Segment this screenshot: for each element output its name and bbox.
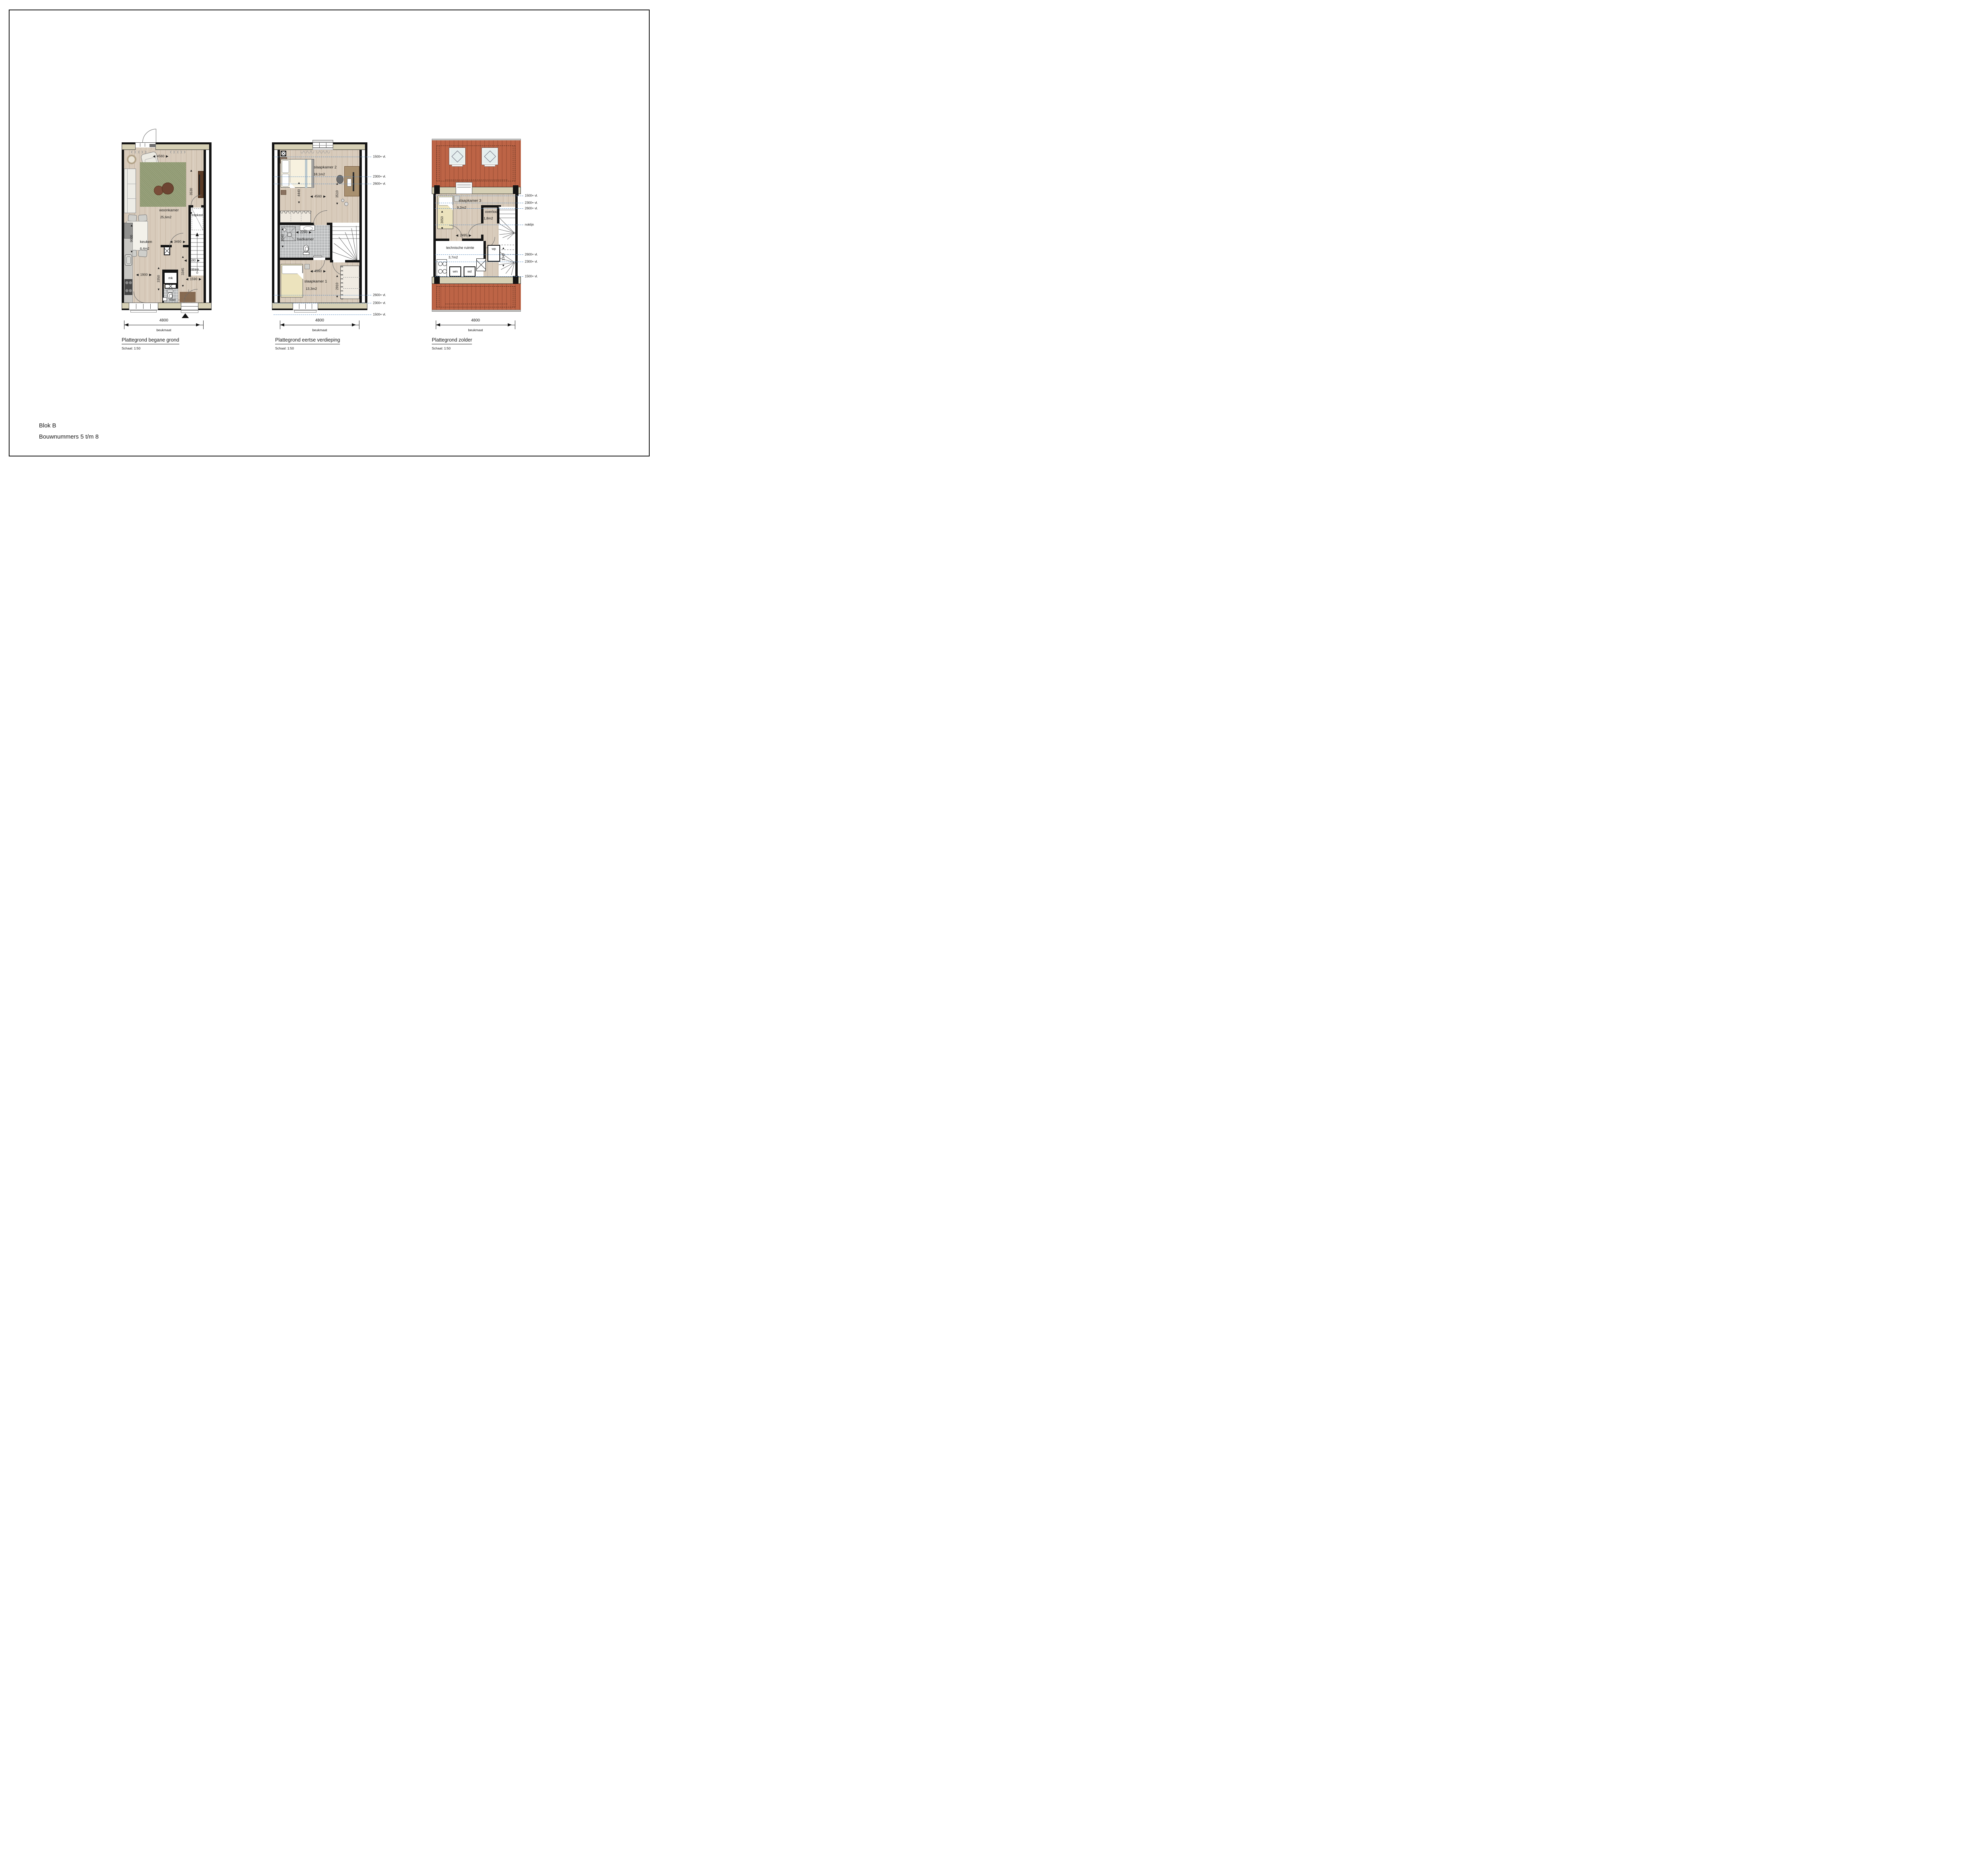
arrow-left-icon: ◀ (310, 195, 313, 198)
room-label-mk: mk (168, 276, 173, 280)
dim-tick (203, 320, 204, 329)
dim-4560: ◀4560▶ (310, 195, 326, 198)
window-sill (130, 310, 157, 313)
dim-2590: ◀2590▶ (184, 259, 200, 262)
wall (272, 142, 313, 144)
window-mullion (305, 304, 306, 309)
drawing-sheet: ◀4560▶ ▲ 3530 ▼ woonkamer 25,6m2 ▲ 9600 … (0, 0, 658, 465)
arrow-right-icon: ▶ (166, 155, 168, 158)
dining-chair (138, 214, 147, 221)
block-label: Blok B (39, 422, 56, 429)
wall (122, 142, 135, 144)
single-bed (281, 264, 303, 297)
window-mullion (299, 304, 299, 309)
facade-band-mid-top (432, 187, 521, 194)
room-label-overloop: overloop (485, 210, 499, 214)
arrow-up-icon: ▲ (336, 182, 339, 186)
skylight-diamond (452, 151, 464, 163)
arrow-down-icon: ▼ (281, 245, 284, 249)
roof-dashed-line (445, 180, 507, 180)
door-leaf (156, 129, 156, 142)
duct-shaft (164, 247, 170, 255)
shower-drain (287, 233, 291, 237)
level-label: 1500+ vl. (525, 194, 538, 198)
roof-dashed-line (439, 146, 439, 181)
wall (272, 309, 293, 310)
plan-title: Plattegrond begane grond (122, 337, 179, 344)
plan-title: Plattegrond zolder (432, 337, 472, 344)
arrow-right-icon: ▶ (309, 231, 311, 234)
wall (333, 142, 367, 144)
beam-width: 4800 (158, 318, 170, 323)
door-mullion (145, 143, 145, 147)
beam-label: beukmaat (312, 328, 327, 332)
arrow-down-icon: ▼ (336, 202, 339, 206)
dining-chair (128, 214, 137, 221)
entrance-arrow-icon (182, 313, 189, 318)
dim-arrow-left-icon (280, 323, 284, 326)
arrow-left-icon: ◀ (456, 234, 458, 237)
coffee-table (162, 183, 174, 194)
level-label: 2600+ vl. (525, 253, 538, 256)
beam-width: 4800 (470, 318, 481, 323)
room-area-woonkamer: 25,6m2 (160, 215, 171, 219)
arrow-left-icon: ◀ (170, 240, 172, 244)
door-leaf (181, 306, 198, 307)
dim-value: 1590 (190, 278, 198, 281)
beam-dim-line (280, 325, 359, 325)
dining-chair (138, 250, 147, 257)
pillow (282, 174, 289, 186)
dim-2040: 2040 (281, 234, 285, 242)
arrow-right-icon: ▶ (469, 234, 471, 237)
roof-dashed-line (445, 304, 507, 304)
arrow-left-icon: ◀ (310, 270, 313, 273)
wall-right (515, 194, 518, 277)
wc-tank (303, 252, 309, 255)
dim-arrow-right-icon (508, 323, 512, 326)
duct-shaft (281, 151, 286, 156)
level-label: 2600+ vl. (373, 182, 386, 186)
single-bed (437, 196, 453, 229)
pillow (282, 265, 303, 274)
dim-arrow-left-icon (436, 323, 440, 326)
dim-value: 2590 (188, 259, 196, 262)
sofa-back (127, 169, 128, 214)
level-line (274, 177, 371, 177)
wardrobe-rail (341, 266, 343, 299)
wardrobe (340, 266, 359, 299)
keyboard (347, 179, 351, 186)
beam-width: 4800 (314, 318, 326, 323)
room-area-slaapkamer2: 18,1m2 (314, 172, 325, 176)
dim-tick (359, 320, 359, 329)
wc-seat (169, 294, 173, 298)
duvet-fold (297, 273, 303, 280)
room-label-woonkamer: woonkamer (159, 208, 179, 213)
arrow-right-icon: ▶ (183, 240, 185, 244)
desk (344, 166, 359, 196)
beam-dim-line (436, 325, 515, 325)
dim-3350: 3350 (157, 275, 161, 283)
window-mullion (312, 304, 312, 309)
room-label-entree: entree (188, 268, 199, 272)
hp-fan (443, 262, 447, 266)
arrow-left-icon: ◀ (136, 273, 138, 277)
basin-bowl (303, 226, 313, 231)
radiator-icon (316, 151, 330, 153)
dim-value: 4560 (315, 270, 322, 273)
duct-shaft (165, 284, 177, 289)
bin (344, 202, 348, 206)
dim-value: 4560 (315, 195, 322, 198)
sofa (124, 169, 136, 213)
room-area-technische-ruimte: 3,7m2 (448, 255, 458, 259)
plan-title: Plattegrond eertse verdieping (275, 337, 340, 344)
arrow-up-icon: ▲ (130, 224, 133, 227)
roof-dashed-line (513, 146, 513, 181)
towel-radiator (313, 256, 322, 257)
arrow-left-icon: ◀ (153, 155, 155, 158)
nightstand (305, 264, 310, 269)
window-mullion (150, 304, 151, 309)
window-bar (313, 145, 333, 146)
wardrobe-rail (280, 211, 311, 214)
level-line (435, 208, 523, 209)
dim-3050: 3050 (441, 216, 444, 224)
dim-4560b: ◀4560▶ (310, 270, 326, 273)
party-wall-stub (209, 142, 212, 310)
radiator-icon (170, 151, 185, 153)
tv-screen (199, 175, 200, 195)
bin (341, 199, 344, 202)
room-label-technische-ruimte: technische ruimte (446, 246, 474, 250)
room-area-slaapkamer1: 13,3m2 (306, 287, 317, 291)
pillow (282, 160, 289, 173)
duvet-fold (447, 205, 453, 210)
wall (198, 309, 212, 310)
build-numbers-label: Bouwnummers 5 t/m 8 (39, 433, 99, 440)
party-wall-stub (365, 142, 367, 310)
dim-value: 4560 (157, 155, 165, 158)
dim-value: 1900 (140, 273, 148, 277)
wc-bowl (303, 245, 309, 252)
roof-dashed-outline (437, 146, 515, 181)
arrow-up-icon: ▲ (190, 169, 193, 173)
wardrobe-divider (291, 214, 291, 223)
level-line (435, 262, 523, 262)
duct-shaft (476, 258, 486, 271)
dim-3510: 3510 (336, 190, 339, 198)
window-bar (457, 184, 471, 184)
arrow-right-icon: ▶ (149, 273, 151, 277)
skylight-sill (452, 165, 463, 167)
skylight (449, 148, 465, 165)
level-label: 1500+ vl. (373, 313, 386, 316)
roof-dashed-outline (437, 286, 515, 307)
room-label-badkamer: badkamer (297, 237, 314, 242)
arrow-up-icon: ▲ (336, 274, 339, 278)
arrow-down-icon: ▼ (441, 227, 444, 230)
wall (122, 309, 129, 310)
dim-value: 2290 (300, 231, 308, 234)
kitchen-sink (125, 254, 132, 266)
sink-basin (126, 256, 131, 264)
room-label-slaapkamer2: slaapkamer 2 (314, 165, 336, 170)
room-label-slaapkamer1: slaapkamer 1 (304, 280, 327, 284)
ridge-line (435, 225, 523, 225)
wardrobe-divider (301, 214, 301, 223)
arrow-up-icon: ▲ (281, 227, 284, 231)
plan-scale: Schaal: 1:50 (432, 346, 450, 350)
window (129, 303, 158, 310)
arrow-down-icon: ▼ (157, 288, 160, 291)
radiator-icon (301, 151, 314, 153)
arrow-right-icon: ▶ (197, 259, 200, 262)
dim-1590: ◀1590▶ (186, 278, 201, 281)
hp-fan (443, 269, 447, 274)
level-line (274, 295, 371, 295)
window-mullion (143, 304, 144, 309)
arrow-right-icon: ▶ (323, 195, 326, 198)
wall-decor (127, 155, 136, 164)
dim-2495: ◀2495▶ (456, 234, 471, 237)
door-step (181, 310, 198, 313)
wardrobe (280, 211, 311, 223)
beam-label: beukmaat (156, 328, 171, 332)
level-line (435, 276, 523, 277)
tv-cabinet (198, 171, 204, 198)
level-label: 2600+ vl. (373, 293, 386, 297)
arrow-down-icon: ▼ (297, 201, 301, 204)
arrow-left-icon: ◀ (184, 259, 186, 262)
party-wall-stub (272, 142, 274, 310)
label-wd: wd (468, 270, 472, 274)
wall (483, 241, 486, 261)
arrow-up-icon: ▲ (297, 181, 301, 185)
arrow-up-icon: ▲ (502, 247, 505, 250)
level-label: 2300+ vl. (525, 201, 538, 205)
hp-fan (438, 269, 443, 274)
wardrobe-divider (343, 277, 360, 278)
monitor (353, 172, 354, 191)
window-mullion (136, 304, 136, 309)
dim-9600: 9600 (130, 235, 134, 243)
staircase (332, 223, 359, 262)
beam-label: beukmaat (468, 328, 483, 332)
label-wp: wp (492, 247, 496, 251)
dim-tick (515, 320, 515, 329)
dim-2910: 2910 (336, 283, 339, 290)
stove (124, 279, 132, 295)
window-bar (457, 186, 471, 186)
window-sill (294, 310, 316, 313)
dim-1900: ◀1900▶ (136, 273, 151, 277)
dim-value: 3490 (174, 240, 182, 244)
level-line (274, 184, 371, 184)
level-label: 1500+ vl. (373, 155, 386, 159)
skylight-sill (484, 165, 495, 167)
level-label: 2300+ vl. (373, 301, 386, 305)
stool (281, 190, 286, 195)
dim-arrow-left-icon (124, 323, 128, 326)
arrow-down-icon: ▼ (130, 250, 133, 254)
level-line (435, 196, 523, 196)
dim-arrow-right-icon (196, 323, 200, 326)
arrow-left-icon: ◀ (296, 231, 298, 234)
arrow-up-icon: ▲ (181, 255, 184, 259)
wall-right (204, 150, 206, 303)
hp-fan (438, 262, 443, 266)
sofa-cushion (127, 198, 136, 199)
arrow-left-icon: ◀ (186, 278, 188, 281)
window-bar (457, 187, 471, 188)
dim-2290: ◀2290▶ (296, 231, 311, 234)
dim-1340: 1340 (502, 253, 505, 261)
roof-eave-strip (432, 310, 521, 312)
room-label-toilet: toilet (169, 298, 176, 302)
arrow-down-icon: ▼ (502, 264, 505, 268)
level-label: 2300+ vl. (525, 260, 538, 264)
skylight (482, 148, 498, 165)
wall (158, 309, 181, 310)
stair-closet-dashes (192, 208, 203, 230)
plan-scale: Schaal: 1:50 (275, 346, 294, 350)
room-label-trapkast: trapkast (192, 214, 203, 217)
sofa-cushion (127, 184, 136, 184)
level-label: 2300+ vl. (373, 175, 386, 179)
wall (318, 309, 367, 310)
dim-4440: 4440 (297, 189, 301, 197)
door-mullion (140, 143, 140, 147)
room-area-slaapkamer3: 9,2m2 (457, 206, 466, 210)
arrow-down-icon: ▼ (181, 284, 184, 288)
beam-dim-line (124, 325, 204, 325)
wall (177, 270, 178, 289)
wardrobe-divider (343, 288, 360, 289)
plan-scale: Schaal: 1:50 (122, 346, 140, 350)
dim-arrow-right-icon (352, 323, 356, 326)
spiral-staircase (499, 207, 515, 277)
dim-4560: ◀4560▶ (153, 155, 168, 158)
wall (156, 142, 212, 144)
dim-value: 2495 (460, 234, 468, 237)
wall-right (359, 150, 362, 303)
level-line (274, 157, 371, 157)
room-label-keuken: keuken (140, 240, 152, 244)
room-label-slaapkamer3: slaapkamer 3 (458, 199, 481, 203)
wall (481, 208, 483, 223)
dim-3345: 3345 (181, 268, 185, 276)
arrow-right-icon: ▶ (323, 270, 326, 273)
level-label: 2600+ vl. (525, 207, 538, 210)
arrow-down-icon: ▼ (336, 295, 339, 299)
level-line (274, 315, 371, 315)
room-area-overloop: 1,8m2 (483, 216, 493, 220)
level-line (274, 303, 371, 303)
arrow-right-icon: ▶ (199, 278, 201, 281)
facade-band-mid-bottom (432, 277, 521, 284)
arrow-up-icon: ▲ (441, 210, 444, 214)
skylight-diamond (484, 151, 496, 163)
washbasin (300, 225, 315, 231)
level-label: 1500+ vl. (525, 275, 538, 278)
arrow-up-icon: ▲ (157, 266, 160, 270)
dim-3530: 3530 (190, 188, 193, 196)
wc-seat (305, 247, 309, 251)
hand-basin (163, 297, 167, 301)
room-area-keuken: 6,4m2 (140, 247, 149, 250)
roof-dashed-line (439, 286, 439, 307)
roof-dashed-line (513, 286, 513, 307)
radiator-icon (131, 151, 146, 153)
ridge-label: noklijn (525, 223, 534, 227)
door-panel (149, 144, 156, 147)
dormer-window (456, 182, 472, 194)
dim-3490: ◀3490▶ (170, 240, 185, 244)
label-wm: wm (453, 270, 458, 274)
pillow (439, 197, 453, 206)
level-line (435, 254, 523, 255)
